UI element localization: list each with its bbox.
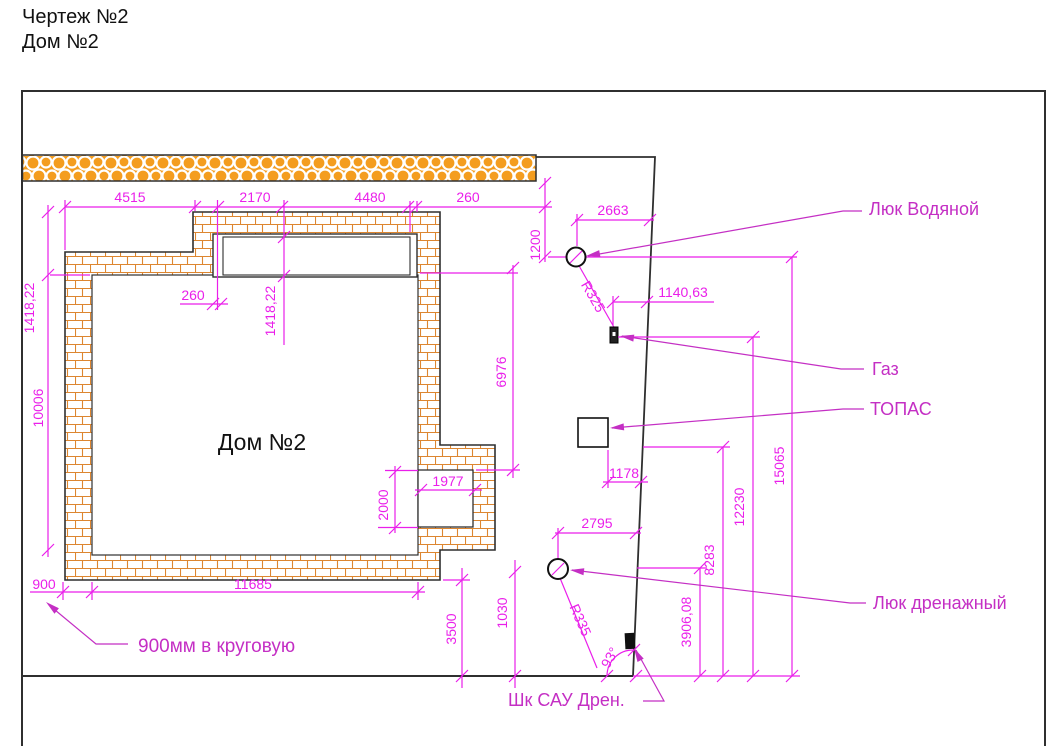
dim-6976-text: 6976 [493, 356, 509, 387]
dim-1140: 1140,63 [607, 284, 714, 325]
dim-3500-text: 3500 [443, 613, 459, 644]
callout-cabinet: Шк САУ Дрен. [508, 648, 664, 710]
dim-site-baseline [630, 670, 800, 682]
dim-1200-text: 1200 [527, 229, 543, 260]
dim-2663-text: 2663 [597, 202, 628, 218]
dim-1140-text: 1140,63 [658, 284, 708, 300]
callout-water-manhole: Люк Водяной [586, 199, 979, 257]
drawing-subtitle: Дом №2 [22, 31, 99, 54]
dim-1418-window: 1418,22 [262, 285, 278, 336]
dim-1178-text: 1178 [609, 465, 639, 481]
dim-1200: 1200 [527, 177, 798, 263]
radius-r325: R325 [578, 264, 615, 329]
dim-93-text: 93° [597, 644, 621, 670]
callout-topas-label: ТОПАС [870, 399, 932, 419]
callout-drain-label: Люк дренажный [873, 593, 1007, 613]
callout-cabinet-label: Шк САУ Дрен. [508, 690, 625, 710]
dim-3906: 3906,08 [637, 562, 707, 682]
dim-2795-text: 2795 [581, 515, 612, 531]
fence-strip [23, 155, 537, 181]
drawing-title: Чертеж №2 [22, 6, 128, 29]
callout-gas-label: Газ [872, 359, 899, 379]
dim-2000: 2000 [375, 489, 391, 520]
dim-11685: 11685 [234, 576, 272, 592]
dim-260-top: 260 [456, 189, 480, 205]
dim-r335-text: R335 [566, 601, 594, 638]
dim-4515: 4515 [114, 189, 145, 205]
dim-3500: 3500 [443, 568, 470, 688]
gas-marker [610, 327, 618, 343]
dim-15065: 15065 [771, 257, 798, 682]
dim-12230-text: 12230 [731, 487, 747, 526]
dim-2795: 2795 [552, 515, 642, 558]
dim-1030-text: 1030 [494, 597, 510, 628]
dim-10006: 10006 [30, 388, 46, 427]
dim-1977: 1977 [432, 473, 463, 489]
drawing-canvas: Чертеж №2 Дом №2 [0, 0, 1063, 746]
dim-15065-text: 15065 [771, 446, 787, 485]
dim-900: 900 [32, 576, 56, 592]
topas-box [578, 418, 608, 447]
dim-260-window: 260 [181, 287, 205, 303]
dim-1030: 1030 [494, 560, 521, 688]
house-label: Дом №2 [218, 429, 306, 455]
ring-note: 900мм в круговую [46, 602, 295, 657]
house-window-outer [213, 234, 417, 277]
dim-3906-text: 3906,08 [678, 596, 694, 647]
house: Дом №2 [65, 212, 495, 580]
site-boundary-line [536, 157, 655, 676]
water-manhole-circle [567, 248, 586, 267]
dim-4480: 4480 [354, 189, 385, 205]
control-cabinet-marker [625, 633, 636, 650]
radius-r335: R335 [560, 578, 597, 668]
callout-water-label: Люк Водяной [869, 199, 979, 219]
dim-1418-left: 1418,22 [21, 282, 37, 333]
dim-8283-text: 8283 [701, 544, 717, 575]
dim-2663: 2663 [571, 202, 656, 246]
dim-2170: 2170 [239, 189, 270, 205]
callout-gas: Газ [620, 335, 899, 379]
site-plan-drawing: Дом №2 4515 2170 4480 260 1418,22 260 14… [0, 0, 1063, 746]
drain-manhole-circle [548, 559, 568, 579]
house-courtyard [92, 275, 418, 555]
callout-topas: ТОПАС [610, 399, 932, 430]
ring-note-label: 900мм в круговую [138, 636, 295, 657]
